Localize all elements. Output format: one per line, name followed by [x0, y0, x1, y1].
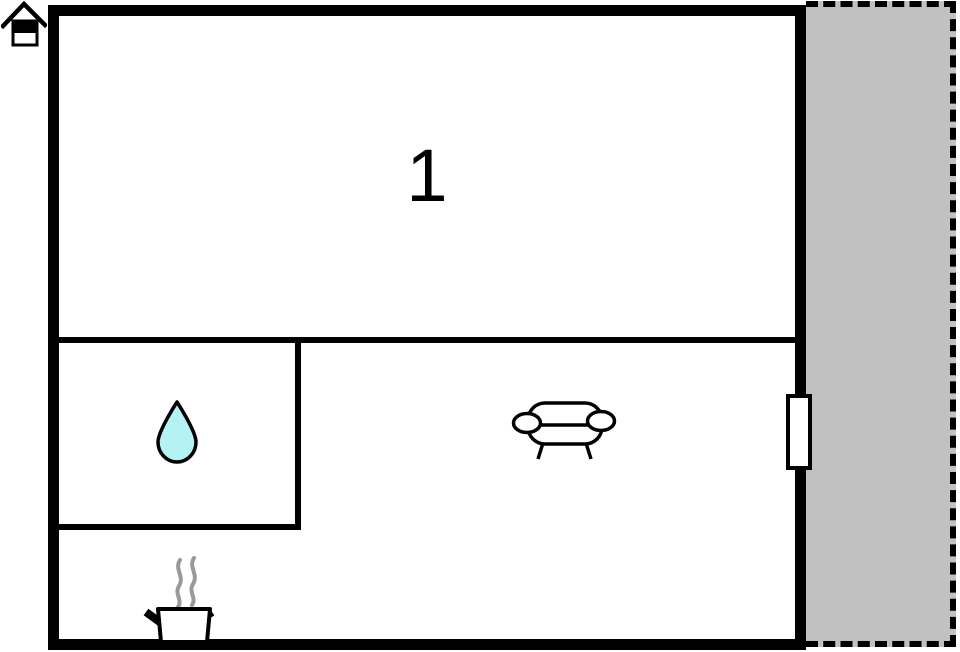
floor-plan: 1: [0, 0, 960, 652]
interior-wall-horizontal: [55, 337, 800, 343]
interior-wall-smallroom-bottom: [55, 524, 301, 530]
sofa-icon: [510, 397, 618, 468]
room-1-label: 1: [347, 136, 507, 216]
home-icon: [1, 1, 47, 52]
terrace-area: [806, 1, 956, 647]
interior-wall-vertical: [295, 340, 301, 530]
water-drop-icon: [151, 399, 203, 470]
cooking-pot-icon: [133, 551, 225, 652]
door-opening: [786, 394, 812, 470]
